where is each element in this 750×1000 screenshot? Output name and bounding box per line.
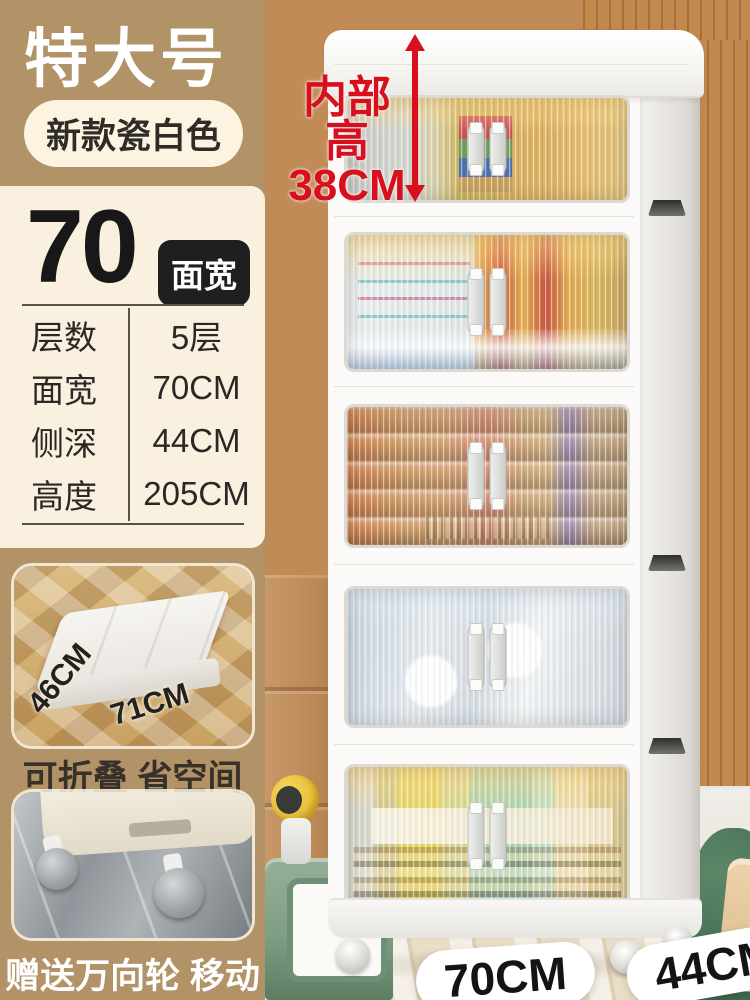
tier-3-window: [344, 404, 630, 548]
width-unit-badge: 面宽: [158, 240, 250, 306]
side-handle-cutout: [648, 555, 686, 571]
spec-label: 面宽: [0, 364, 128, 412]
door-handle: [468, 444, 507, 508]
spec-label: 层数: [0, 311, 128, 359]
spec-panel: 70 面宽 层数 5层 面宽 70CM 侧深 44CM 高度: [0, 186, 265, 548]
cabinet-bottom-corner: [40, 792, 252, 857]
inner-height-text: 内部高: [282, 76, 412, 164]
universal-wheel: [154, 868, 204, 918]
spec-row-depth: 侧深 44CM: [0, 414, 265, 467]
inner-height-annotation: 内部高 38CM: [282, 76, 412, 208]
width-number: 70: [26, 188, 136, 307]
spec-divider-bottom: [22, 523, 244, 525]
side-handle-cutout: [648, 200, 686, 216]
side-handle-cutout: [648, 738, 686, 754]
wood-slat-wall-right: [694, 40, 750, 798]
spec-value: 70CM: [128, 369, 265, 407]
wheels-photo: [14, 792, 252, 938]
spec-value: 205CM: [128, 475, 265, 513]
door-handle: [468, 625, 507, 689]
wheel-caption: 赠送万向轮 移动省力: [0, 948, 265, 1000]
color-tag-pill: 新款瓷白色: [24, 100, 243, 167]
caster-wheel: [336, 938, 370, 972]
spec-table: 层数 5层 面宽 70CM 侧深 44CM 高度 205CM: [0, 308, 265, 520]
tier-divider: [334, 216, 634, 217]
tier-4-window: [344, 586, 630, 728]
spec-row-width: 面宽 70CM: [0, 361, 265, 414]
tier-divider: [334, 386, 634, 387]
tier-2-window: [344, 232, 630, 372]
inner-height-value: 38CM: [282, 164, 412, 208]
universal-wheel: [36, 848, 78, 890]
product-card: 内部高 38CM 70CM 44CM 特大号 新款瓷白色 70 面宽 层数 5层…: [0, 0, 750, 1000]
spec-label: 高度: [0, 470, 128, 518]
cabinet-base: [328, 898, 702, 938]
inner-height-arrow: [412, 50, 418, 186]
spec-label: 侧深: [0, 417, 128, 465]
door-handle: [468, 270, 507, 334]
folded-cabinet-photo: 46CM 71CM: [14, 566, 252, 746]
astronaut-figurine-visor: [276, 786, 302, 814]
tier-divider: [334, 744, 634, 745]
tier-divider: [334, 564, 634, 565]
door-handle: [468, 804, 507, 868]
spec-row-layers: 层数 5层: [0, 308, 265, 361]
spec-value: 44CM: [128, 422, 265, 460]
spec-value: 5层: [128, 311, 265, 359]
spec-row-height: 高度 205CM: [0, 467, 265, 520]
cabinet-base-slot: [129, 819, 192, 837]
size-tag: 特大号: [24, 8, 228, 100]
tier-5-window: [344, 764, 630, 908]
door-handle: [468, 124, 507, 174]
info-sidebar: 特大号 新款瓷白色 70 面宽 层数 5层 面宽 70CM 侧深 44CM: [0, 0, 265, 1000]
astronaut-figurine-body: [281, 818, 311, 864]
spec-divider-top: [22, 304, 244, 306]
